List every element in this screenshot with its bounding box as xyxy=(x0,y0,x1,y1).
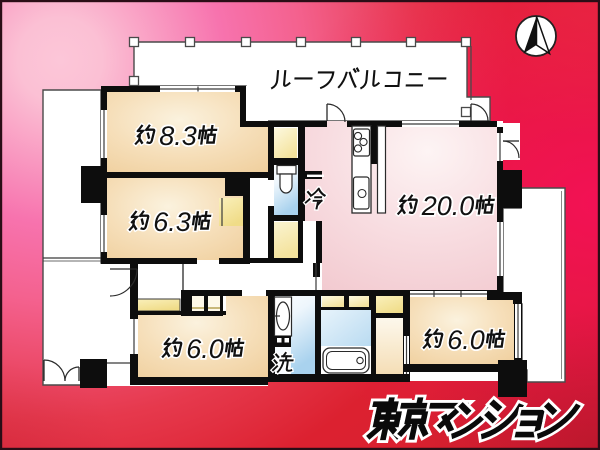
svg-text:6.0: 6.0 xyxy=(447,325,485,355)
svg-text:8.3: 8.3 xyxy=(159,121,197,151)
svg-text:6.3: 6.3 xyxy=(153,207,191,237)
svg-text:6.0: 6.0 xyxy=(186,334,224,364)
svg-text:20.0: 20.0 xyxy=(421,191,475,221)
